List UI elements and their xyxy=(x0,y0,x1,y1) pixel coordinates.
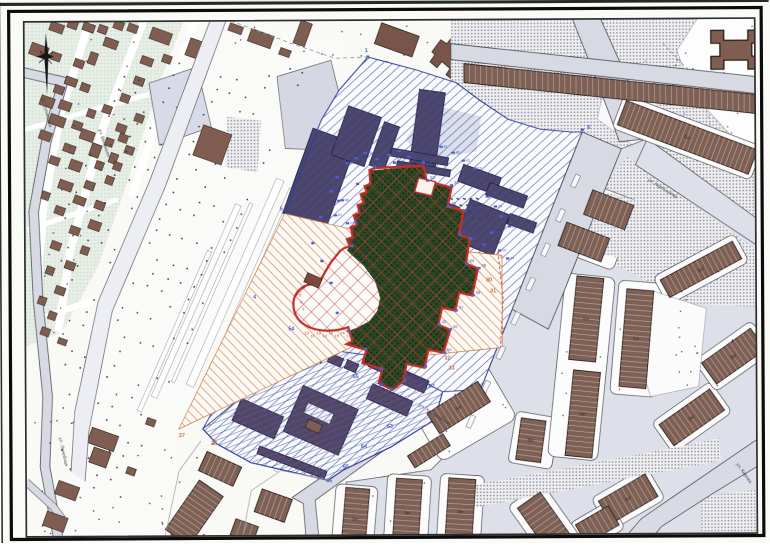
svg-text:13: 13 xyxy=(350,221,354,225)
svg-text:38: 38 xyxy=(430,175,435,180)
svg-text:37: 37 xyxy=(426,157,431,162)
svg-text:41: 41 xyxy=(443,145,447,149)
svg-text:30: 30 xyxy=(411,155,415,159)
svg-text:32: 32 xyxy=(444,356,450,362)
svg-text:30: 30 xyxy=(486,277,492,283)
svg-text:34: 34 xyxy=(510,256,514,260)
svg-text:3эт: 3эт xyxy=(352,516,359,522)
svg-text:46: 46 xyxy=(345,198,349,202)
svg-text:5эт: 5эт xyxy=(579,411,586,417)
svg-text:46: 46 xyxy=(455,151,459,155)
svg-text:41: 41 xyxy=(467,205,472,210)
svg-text:40: 40 xyxy=(451,201,456,206)
svg-text:36: 36 xyxy=(397,157,402,162)
svg-text:37: 37 xyxy=(334,189,338,193)
svg-text:11: 11 xyxy=(339,175,343,179)
svg-text:27: 27 xyxy=(179,433,185,439)
svg-text:46: 46 xyxy=(476,290,481,295)
svg-text:28: 28 xyxy=(211,441,217,447)
svg-text:54: 54 xyxy=(288,326,295,332)
svg-text:29: 29 xyxy=(367,151,371,155)
svg-text:5эт: 5эт xyxy=(527,437,534,443)
svg-text:56: 56 xyxy=(379,382,385,388)
svg-text:1: 1 xyxy=(365,48,368,54)
svg-text:43: 43 xyxy=(465,159,469,163)
svg-text:39: 39 xyxy=(454,180,459,185)
svg-text:48: 48 xyxy=(442,319,447,324)
svg-text:5эт: 5эт xyxy=(633,336,640,342)
svg-text:38: 38 xyxy=(494,230,498,234)
svg-text:45: 45 xyxy=(349,161,353,165)
svg-text:50: 50 xyxy=(447,347,452,352)
svg-text:65: 65 xyxy=(343,464,349,470)
svg-text:6: 6 xyxy=(587,125,590,131)
svg-text:49: 49 xyxy=(453,324,458,329)
svg-text:17: 17 xyxy=(490,194,494,198)
svg-text:10: 10 xyxy=(502,248,506,252)
svg-text:3эт: 3эт xyxy=(457,509,464,514)
svg-text:35: 35 xyxy=(512,224,516,228)
svg-text:43: 43 xyxy=(473,233,478,238)
svg-text:63: 63 xyxy=(387,424,393,430)
svg-text:5эт: 5эт xyxy=(583,316,590,322)
svg-text:33: 33 xyxy=(448,366,454,372)
svg-text:35: 35 xyxy=(377,162,382,167)
svg-text:12: 12 xyxy=(401,149,405,153)
svg-text:64: 64 xyxy=(361,444,368,450)
svg-text:47: 47 xyxy=(338,213,342,217)
svg-text:44: 44 xyxy=(469,258,474,263)
svg-text:46: 46 xyxy=(504,214,508,218)
svg-text:42: 42 xyxy=(462,229,467,234)
svg-text:26: 26 xyxy=(358,156,362,160)
svg-text:55: 55 xyxy=(353,374,359,380)
svg-text:47: 47 xyxy=(459,305,464,310)
svg-text:31: 31 xyxy=(490,288,496,294)
svg-text:14: 14 xyxy=(486,242,490,246)
svg-text:3эт: 3эт xyxy=(404,510,411,515)
svg-text:36: 36 xyxy=(391,153,395,157)
svg-text:57: 57 xyxy=(429,384,435,390)
svg-text:5: 5 xyxy=(280,207,283,213)
svg-text:12: 12 xyxy=(477,166,481,170)
svg-text:21: 21 xyxy=(379,157,383,161)
svg-text:45: 45 xyxy=(481,263,486,268)
svg-text:36: 36 xyxy=(498,204,502,208)
